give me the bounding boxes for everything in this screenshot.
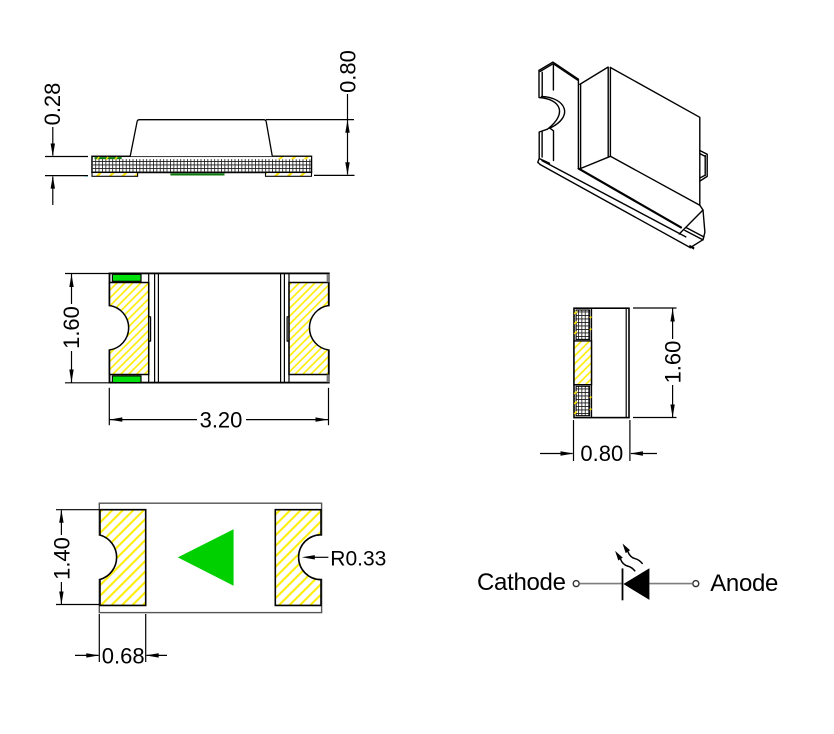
svg-text:1.40: 1.40 <box>50 537 75 580</box>
svg-text:R0.33: R0.33 <box>330 548 386 571</box>
svg-text:Cathode: Cathode <box>477 569 566 596</box>
svg-text:Anode: Anode <box>710 570 778 597</box>
svg-text:0.28: 0.28 <box>40 83 65 126</box>
svg-text:1.60: 1.60 <box>59 306 84 349</box>
svg-text:0.80: 0.80 <box>580 441 623 466</box>
svg-text:0.68: 0.68 <box>102 644 145 669</box>
svg-text:3.20: 3.20 <box>200 407 243 432</box>
svg-text:1.60: 1.60 <box>660 341 685 384</box>
svg-text:0.80: 0.80 <box>335 50 360 93</box>
